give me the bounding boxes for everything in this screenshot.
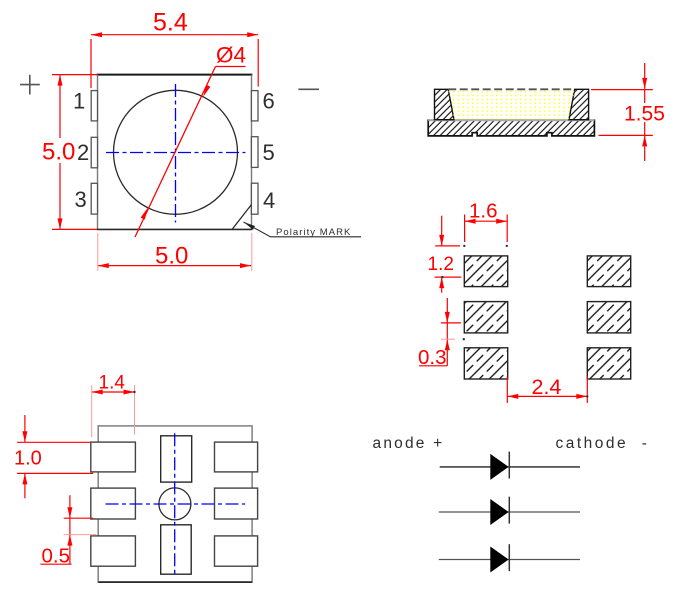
svg-text:1.55: 1.55	[624, 102, 665, 125]
svg-text:5.0: 5.0	[42, 139, 75, 166]
svg-text:3: 3	[75, 187, 87, 212]
svg-text:Ø4: Ø4	[216, 43, 246, 68]
svg-text:0.3: 0.3	[418, 346, 447, 369]
svg-text:1: 1	[73, 89, 85, 114]
svg-text:5.0: 5.0	[155, 242, 188, 269]
svg-text:1.6: 1.6	[469, 199, 498, 222]
svg-text:2: 2	[77, 140, 89, 165]
svg-text:Polarity MARK: Polarity MARK	[276, 227, 351, 238]
svg-text:5: 5	[263, 140, 275, 165]
svg-text:6: 6	[263, 89, 275, 114]
svg-text:0.5: 0.5	[42, 545, 71, 568]
svg-text:cathode -: cathode -	[556, 435, 650, 452]
svg-text:anode +: anode +	[373, 435, 445, 452]
svg-text:1.0: 1.0	[14, 448, 42, 470]
svg-text:4: 4	[263, 188, 275, 213]
svg-text:5.4: 5.4	[153, 9, 188, 37]
svg-text:2.4: 2.4	[532, 375, 562, 399]
svg-text:1.4: 1.4	[99, 373, 126, 394]
svg-text:1.2: 1.2	[428, 254, 454, 275]
